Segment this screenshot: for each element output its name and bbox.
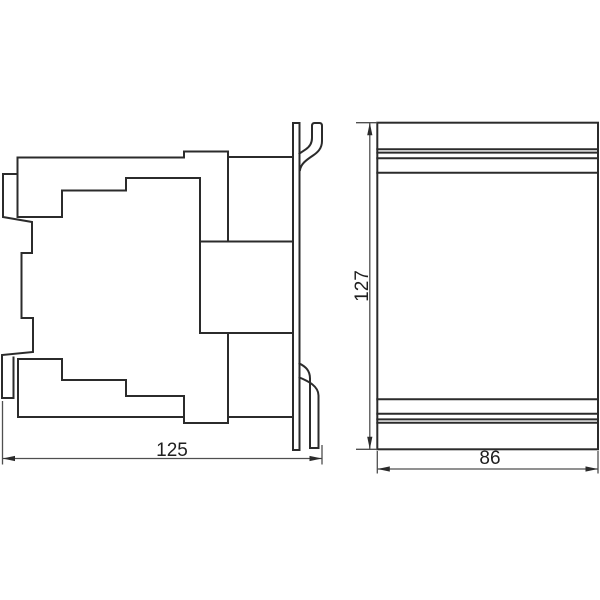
side-view	[2, 123, 322, 450]
din-rail-bottom-clip	[300, 364, 319, 449]
technical-drawing: 125 127 86	[0, 0, 600, 600]
dimension-127-arrow-top	[367, 123, 372, 136]
din-rail-plate	[293, 123, 300, 450]
dimension-86: 86	[377, 448, 598, 474]
dimension-86-arrow-right	[586, 466, 599, 471]
dimension-127-arrow-bottom	[367, 437, 372, 450]
front-view-body	[377, 123, 598, 450]
dimension-125-label: 125	[156, 440, 188, 461]
dimension-86-label: 86	[479, 448, 500, 469]
dimension-125-arrow-right	[310, 456, 323, 461]
dimension-125: 125	[3, 401, 323, 465]
side-view-body-outline	[2, 152, 293, 424]
dimension-125-arrow-left	[3, 456, 16, 461]
front-view	[377, 123, 598, 450]
dimension-86-arrow-left	[377, 466, 390, 471]
front-view-rail-band-lines	[377, 149, 598, 422]
din-rail-top-hook	[300, 123, 323, 170]
dimension-127: 127	[352, 123, 377, 450]
dimension-127-label: 127	[352, 270, 373, 302]
